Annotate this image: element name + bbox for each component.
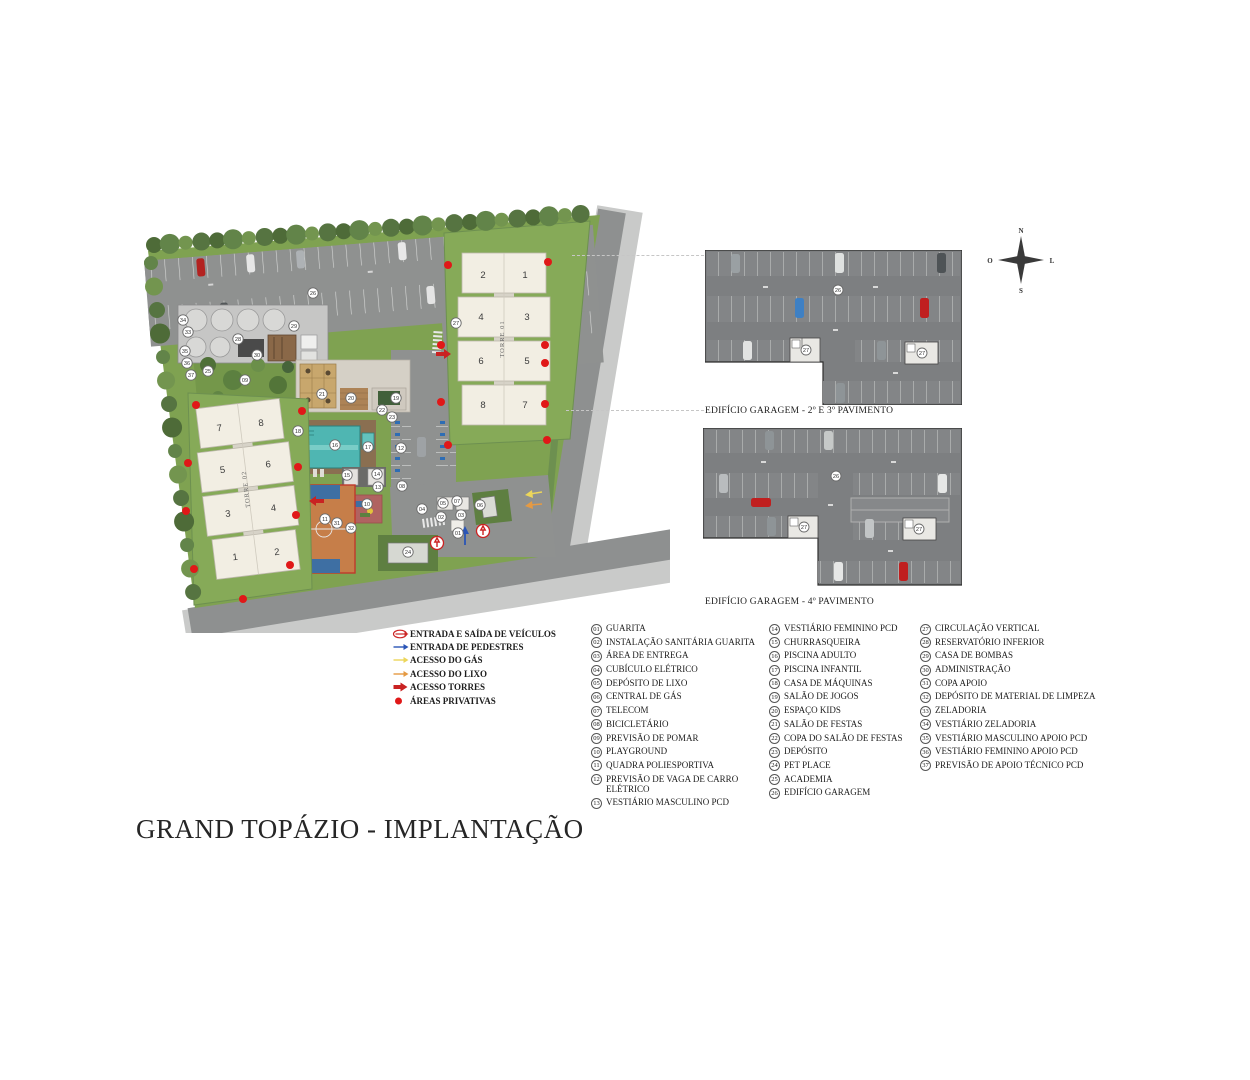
legend-item-number: 18 xyxy=(769,678,780,689)
tree xyxy=(192,233,210,251)
legend-item-number: 26 xyxy=(769,788,780,799)
legend-item-number: 14 xyxy=(769,624,780,635)
number-marker: 27 xyxy=(801,345,811,355)
svg-text:23: 23 xyxy=(389,415,395,421)
legend-item-label: DEPÓSITO DE LIXO xyxy=(606,678,687,689)
legend-item-label: CENTRAL DE GÁS xyxy=(606,691,682,702)
svg-text:30: 30 xyxy=(254,353,260,359)
legend-item: 28RESERVATÓRIO INFERIOR xyxy=(920,637,1112,649)
number-marker: 07 xyxy=(452,496,462,506)
tree xyxy=(160,234,180,254)
tree xyxy=(209,232,225,248)
tree xyxy=(508,210,526,228)
private-area-dot xyxy=(437,341,445,349)
private-area-dot xyxy=(444,261,452,269)
connector-line-top xyxy=(572,255,704,256)
legend-item-label: EDIFÍCIO GARAGEM xyxy=(784,787,870,798)
svg-text:25: 25 xyxy=(205,369,211,375)
unit-number: 5 xyxy=(524,356,529,367)
private-area-dot xyxy=(286,561,294,569)
legend-item: 03ÁREA DE ENTREGA xyxy=(591,650,765,662)
number-marker: 22 xyxy=(377,405,387,415)
legend-item-label: ACADEMIA xyxy=(784,774,833,785)
legend-item: 11QUADRA POLIESPORTIVA xyxy=(591,760,765,772)
legend-item: 23DEPÓSITO xyxy=(769,746,923,758)
legend-item: 36VESTIÁRIO FEMININO APOIO PCD xyxy=(920,746,1112,758)
tree xyxy=(223,229,243,249)
access-legend-item: ENTRADA DE PEDESTRES xyxy=(392,640,556,653)
tower1-label: TORRE 01 xyxy=(499,320,506,357)
svg-text:26: 26 xyxy=(310,291,316,297)
tree xyxy=(495,213,509,227)
legend-item-number: 33 xyxy=(920,706,931,717)
unit-number: 1 xyxy=(522,270,527,281)
tree xyxy=(286,225,306,245)
tree xyxy=(242,231,256,245)
number-marker: 19 xyxy=(391,393,401,403)
site-plan: 21436587 TORRE 01 78563412 TORRE 02 xyxy=(138,205,670,633)
legend-item: 16PISCINA ADULTO xyxy=(769,650,923,662)
legend-item-number: 25 xyxy=(769,774,780,785)
svg-text:27: 27 xyxy=(803,348,809,354)
tree xyxy=(319,223,337,241)
legend-item-label: VESTIÁRIO ZELADORIA xyxy=(935,719,1036,730)
legend-column-1: 01GUARITA02INSTALAÇÃO SANITÁRIA GUARITA0… xyxy=(591,623,765,811)
number-marker: 13 xyxy=(373,482,383,492)
svg-text:22: 22 xyxy=(379,408,385,414)
number-marker: 11 xyxy=(320,514,330,524)
svg-text:06: 06 xyxy=(477,503,483,509)
svg-text:02: 02 xyxy=(438,515,444,521)
legend-item-number: 12 xyxy=(591,774,602,785)
legend-item: 25ACADEMIA xyxy=(769,774,923,786)
number-marker: 26 xyxy=(831,471,841,481)
legend-item-label: SALÃO DE FESTAS xyxy=(784,719,862,730)
tree xyxy=(305,227,319,241)
number-marker: 18 xyxy=(293,426,303,436)
private-area-dot xyxy=(294,463,302,471)
number-marker: 06 xyxy=(475,500,485,510)
legend-item-number: 22 xyxy=(769,733,780,744)
legend-item-label: PREVISÃO DE VAGA DE CARRO ELÉTRICO xyxy=(606,774,765,796)
svg-text:01: 01 xyxy=(455,531,461,537)
number-marker: 26 xyxy=(308,288,318,298)
legend-item-number: 09 xyxy=(591,733,602,744)
svg-text:19: 19 xyxy=(393,396,399,402)
tree xyxy=(399,219,415,235)
legend-item: 08BICICLETÁRIO xyxy=(591,719,765,731)
legend-item: 34VESTIÁRIO ZELADORIA xyxy=(920,719,1112,731)
legend-item-number: 29 xyxy=(920,651,931,662)
legend-item-number: 08 xyxy=(591,719,602,730)
legend-item-label: PISCINA ADULTO xyxy=(784,650,856,661)
private-area-dot xyxy=(292,511,300,519)
tree xyxy=(368,222,382,236)
legend-item: 19SALÃO DE JOGOS xyxy=(769,691,923,703)
access-legend-label: ACESSO TORRES xyxy=(410,682,485,692)
compass-south: S xyxy=(1019,287,1023,294)
private-area-dot xyxy=(541,341,549,349)
garage-plan-2: 262727 xyxy=(703,428,962,586)
access-legend-label: ACESSO DO GÁS xyxy=(410,655,483,665)
legend-item: 10PLAYGROUND xyxy=(591,746,765,758)
legend-item: 37PREVISÃO DE APOIO TÉCNICO PCD xyxy=(920,760,1112,772)
number-marker: 24 xyxy=(403,547,413,557)
unit-number: 3 xyxy=(524,312,529,323)
legend-item-number: 35 xyxy=(920,733,931,744)
number-marker: 04 xyxy=(417,504,427,514)
number-marker: 09 xyxy=(240,375,250,385)
number-marker: 21 xyxy=(317,389,327,399)
tree xyxy=(256,228,274,246)
legend-item: 02INSTALAÇÃO SANITÁRIA GUARITA xyxy=(591,637,765,649)
legend-item: 05DEPÓSITO DE LIXO xyxy=(591,678,765,690)
legend-item-number: 13 xyxy=(591,798,602,809)
number-marker: 08 xyxy=(397,481,407,491)
tree xyxy=(145,278,163,296)
legend-item: 14VESTIÁRIO FEMININO PCD xyxy=(769,623,923,635)
legend-item-number: 23 xyxy=(769,747,780,758)
number-marker: 27 xyxy=(917,348,927,358)
page-title: GRAND TOPÁZIO - IMPLANTAÇÃO xyxy=(136,814,584,845)
svg-text:11: 11 xyxy=(322,517,328,523)
access-legend-label: ENTRADA E SAÍDA DE VEÍCULOS xyxy=(410,629,556,639)
garage-plan-2-label: EDIFÍCIO GARAGEM - 4º PAVIMENTO xyxy=(705,597,874,607)
svg-text:17: 17 xyxy=(365,445,371,451)
svg-text:13: 13 xyxy=(375,485,381,491)
legend-item: 35VESTIÁRIO MASCULINO APOIO PCD xyxy=(920,733,1112,745)
legend-item-label: ZELADORIA xyxy=(935,705,987,716)
legend-item-number: 34 xyxy=(920,719,931,730)
legend-item: 27CIRCULAÇÃO VERTICAL xyxy=(920,623,1112,635)
number-marker: 20 xyxy=(346,393,356,403)
vehicle-entrance-marker xyxy=(477,525,490,538)
svg-text:12: 12 xyxy=(398,446,404,452)
svg-text:18: 18 xyxy=(295,429,301,435)
legend-item-number: 16 xyxy=(769,651,780,662)
legend-item-number: 28 xyxy=(920,637,931,648)
svg-text:20: 20 xyxy=(348,396,354,402)
double-arrow-icon xyxy=(392,629,410,639)
svg-text:36: 36 xyxy=(184,361,190,367)
svg-text:26: 26 xyxy=(835,288,841,294)
legend-item-number: 07 xyxy=(591,706,602,717)
private-area-dot xyxy=(192,401,200,409)
unit-number: 7 xyxy=(522,400,527,411)
legend-item: 30ADMINISTRAÇÃO xyxy=(920,664,1112,676)
legend-item-number: 19 xyxy=(769,692,780,703)
access-legend-item: ACESSO DO GÁS xyxy=(392,654,556,667)
legend-item-label: ADMINISTRAÇÃO xyxy=(935,664,1011,675)
private-area-dot xyxy=(541,400,549,408)
tree xyxy=(476,211,496,231)
tree xyxy=(349,220,369,240)
legend-item-label: ÁREA DE ENTREGA xyxy=(606,650,689,661)
legend-item-label: VESTIÁRIO MASCULINO PCD xyxy=(606,797,729,808)
number-marker: 27 xyxy=(451,318,461,328)
private-area-dot xyxy=(437,398,445,406)
private-area-dot xyxy=(444,441,452,449)
access-legend-label: ENTRADA DE PEDESTRES xyxy=(410,642,524,652)
arrow-icon xyxy=(392,655,410,665)
number-marker: 31 xyxy=(332,518,342,528)
legend-item-number: 06 xyxy=(591,692,602,703)
legend-item: 32DEPÓSITO DE MATERIAL DE LIMPEZA xyxy=(920,691,1112,703)
water-tank xyxy=(210,337,230,357)
legend-item-number: 03 xyxy=(591,651,602,662)
legend-item-number: 32 xyxy=(920,692,931,703)
compass-north: N xyxy=(1018,227,1023,235)
tree xyxy=(382,219,400,237)
svg-text:21: 21 xyxy=(319,392,325,398)
legend-item-number: 31 xyxy=(920,678,931,689)
svg-text:16: 16 xyxy=(332,443,338,449)
legend-item-label: ESPAÇO KIDS xyxy=(784,705,841,716)
number-marker: 28 xyxy=(233,334,243,344)
tree xyxy=(156,350,170,364)
compass-rose: N S L O xyxy=(986,224,1056,294)
legend-item: 09PREVISÃO DE POMAR xyxy=(591,733,765,745)
arrow-icon xyxy=(392,642,410,652)
water-tank xyxy=(263,309,285,331)
number-marker: 15 xyxy=(342,470,352,480)
tree xyxy=(173,490,189,506)
svg-text:29: 29 xyxy=(291,324,297,330)
svg-text:27: 27 xyxy=(916,527,922,533)
dot-icon xyxy=(392,696,410,706)
svg-text:37: 37 xyxy=(188,373,194,379)
tree xyxy=(162,418,182,438)
legend-item: 31COPA APOIO xyxy=(920,678,1112,690)
svg-text:10: 10 xyxy=(364,502,370,508)
number-marker: 01 xyxy=(453,528,463,538)
number-marker: 30 xyxy=(252,350,262,360)
private-area-dot xyxy=(298,407,306,415)
number-marker: 16 xyxy=(330,440,340,450)
tree xyxy=(150,324,170,344)
tree xyxy=(413,215,433,235)
access-legend-item: ACESSO DO LIXO xyxy=(392,667,556,680)
number-marker: 17 xyxy=(363,442,373,452)
access-legend-label: ÁREAS PRIVATIVAS xyxy=(410,696,496,706)
legend-item: 04CUBÍCULO ELÉTRICO xyxy=(591,664,765,676)
legend-item-label: COPA DO SALÃO DE FESTAS xyxy=(784,733,902,744)
number-marker: 35 xyxy=(180,346,190,356)
legend-item: 21SALÃO DE FESTAS xyxy=(769,719,923,731)
legend-item-label: CASA DE MÁQUINAS xyxy=(784,678,873,689)
legend-item-label: CHURRASQUEIRA xyxy=(784,637,861,648)
svg-text:27: 27 xyxy=(919,351,925,357)
garage-plan-1: 262727 xyxy=(705,250,962,405)
amenities-block xyxy=(296,360,410,412)
svg-text:14: 14 xyxy=(374,472,380,478)
legend-item-label: INSTALAÇÃO SANITÁRIA GUARITA xyxy=(606,637,755,648)
tree xyxy=(161,396,177,412)
legend-column-2: 14VESTIÁRIO FEMININO PCD15CHURRASQUEIRA1… xyxy=(769,623,923,801)
legend-item-number: 27 xyxy=(920,624,931,635)
tree xyxy=(525,209,541,225)
legend-item-label: PISCINA INFANTIL xyxy=(784,664,862,675)
legend-item-number: 10 xyxy=(591,747,602,758)
legend-item-number: 21 xyxy=(769,719,780,730)
number-marker: 10 xyxy=(362,499,372,509)
legend-item: 12PREVISÃO DE VAGA DE CARRO ELÉTRICO xyxy=(591,774,765,796)
svg-text:03: 03 xyxy=(458,513,464,519)
legend-item-number: 11 xyxy=(591,760,602,771)
tree xyxy=(149,302,165,318)
private-area-dot xyxy=(544,258,552,266)
svg-text:24: 24 xyxy=(405,550,411,556)
private-area-dot xyxy=(543,436,551,444)
access-legend-label: ACESSO DO LIXO xyxy=(410,669,487,679)
tree xyxy=(180,538,194,552)
legend-item: 24PET PLACE xyxy=(769,760,923,772)
tree xyxy=(336,223,352,239)
legend-item-label: PET PLACE xyxy=(784,760,831,771)
access-legend-item: ÁREAS PRIVATIVAS xyxy=(392,694,556,707)
legend-column-3: 27CIRCULAÇÃO VERTICAL28RESERVATÓRIO INFE… xyxy=(920,623,1112,774)
number-marker: 25 xyxy=(203,366,213,376)
legend-item-label: PREVISÃO DE APOIO TÉCNICO PCD xyxy=(935,760,1083,771)
number-marker: 37 xyxy=(186,370,196,380)
water-tank xyxy=(237,309,259,331)
svg-text:28: 28 xyxy=(235,337,241,343)
legend-item: 17PISCINA INFANTIL xyxy=(769,664,923,676)
unit-number: 4 xyxy=(478,312,483,323)
svg-text:07: 07 xyxy=(454,499,460,505)
legend-item-label: CASA DE BOMBAS xyxy=(935,650,1013,661)
number-marker: 12 xyxy=(396,443,406,453)
compass-east: L xyxy=(1050,257,1055,265)
legend-item-number: 05 xyxy=(591,678,602,689)
legend-item-label: DEPÓSITO DE MATERIAL DE LIMPEZA xyxy=(935,691,1096,702)
legend-item: 22COPA DO SALÃO DE FESTAS xyxy=(769,733,923,745)
compass-star-icon xyxy=(998,236,1044,284)
access-legend-item: ACESSO TORRES xyxy=(392,681,556,694)
svg-text:32: 32 xyxy=(348,526,354,532)
legend-item-label: SALÃO DE JOGOS xyxy=(784,691,859,702)
legend-item-label: DEPÓSITO xyxy=(784,746,827,757)
number-marker: 02 xyxy=(436,512,446,522)
legend-item: 18CASA DE MÁQUINAS xyxy=(769,678,923,690)
legend-item: 01GUARITA xyxy=(591,623,765,635)
svg-text:33: 33 xyxy=(185,330,191,336)
tree xyxy=(146,237,162,253)
legend-item-label: PLAYGROUND xyxy=(606,746,667,757)
number-marker: 14 xyxy=(372,469,382,479)
number-marker: 32 xyxy=(346,523,356,533)
tree xyxy=(144,256,158,270)
legend-item-number: 20 xyxy=(769,706,780,717)
vehicle-entrance-marker xyxy=(431,537,444,550)
legend-item-number: 36 xyxy=(920,747,931,758)
legend-item-label: CIRCULAÇÃO VERTICAL xyxy=(935,623,1040,634)
legend-item-number: 04 xyxy=(591,665,602,676)
svg-text:08: 08 xyxy=(399,484,405,490)
legend-item: 06CENTRAL DE GÁS xyxy=(591,691,765,703)
legend-item-number: 15 xyxy=(769,637,780,648)
tree xyxy=(179,236,193,250)
water-tank xyxy=(211,309,233,331)
unit-number: 2 xyxy=(480,270,485,281)
legend-item-label: RESERVATÓRIO INFERIOR xyxy=(935,637,1044,648)
bold-arrow-icon xyxy=(392,682,410,692)
tree xyxy=(169,466,187,484)
number-marker: 34 xyxy=(178,315,188,325)
number-marker: 26 xyxy=(833,285,843,295)
legend-item-label: VESTIÁRIO FEMININO PCD xyxy=(784,623,898,634)
tree xyxy=(272,228,288,244)
legend-item-number: 30 xyxy=(920,665,931,676)
svg-text:09: 09 xyxy=(242,378,248,384)
legend-item-label: GUARITA xyxy=(606,623,646,634)
garage-plan-1-label: EDIFÍCIO GARAGEM - 2º E 3º PAVIMENTO xyxy=(705,406,893,416)
number-marker: 36 xyxy=(182,358,192,368)
legend-item: 20ESPAÇO KIDS xyxy=(769,705,923,717)
legend-item: 13VESTIÁRIO MASCULINO PCD xyxy=(591,797,765,809)
legend-item: 29CASA DE BOMBAS xyxy=(920,650,1112,662)
tree xyxy=(445,214,463,232)
legend-item-label: BICICLETÁRIO xyxy=(606,719,669,730)
legend-item-label: COPA APOIO xyxy=(935,678,987,689)
legend-item-number: 01 xyxy=(591,624,602,635)
access-legend-item: ENTRADA E SAÍDA DE VEÍCULOS xyxy=(392,627,556,640)
svg-text:05: 05 xyxy=(440,501,446,507)
svg-text:26: 26 xyxy=(833,474,839,480)
unit-number: 6 xyxy=(478,356,483,367)
legend-item-label: VESTIÁRIO MASCULINO APOIO PCD xyxy=(935,733,1087,744)
svg-text:04: 04 xyxy=(419,507,425,513)
tree xyxy=(185,584,201,600)
private-area-dot xyxy=(182,507,190,515)
legend-item: 07TELECOM xyxy=(591,705,765,717)
legend-item-label: VESTIÁRIO FEMININO APOIO PCD xyxy=(935,746,1078,757)
unit-number: 8 xyxy=(480,400,485,411)
private-area-dot xyxy=(184,459,192,467)
svg-text:27: 27 xyxy=(801,525,807,531)
number-marker: 27 xyxy=(799,522,809,532)
connector-line-bottom xyxy=(566,410,704,411)
private-area-dot xyxy=(541,359,549,367)
tree xyxy=(539,206,559,226)
number-marker: 23 xyxy=(387,412,397,422)
legend-item: 26EDIFÍCIO GARAGEM xyxy=(769,787,923,799)
legend-item-number: 17 xyxy=(769,665,780,676)
legend-item-number: 24 xyxy=(769,760,780,771)
number-marker: 29 xyxy=(289,321,299,331)
svg-text:15: 15 xyxy=(344,473,350,479)
legend-item-number: 02 xyxy=(591,637,602,648)
svg-text:27: 27 xyxy=(453,321,459,327)
legend-item-label: CUBÍCULO ELÉTRICO xyxy=(606,664,698,675)
tree xyxy=(572,205,590,223)
svg-text:31: 31 xyxy=(334,521,340,527)
tree xyxy=(431,217,445,231)
legend-item-label: QUADRA POLIESPORTIVA xyxy=(606,760,714,771)
number-marker: 33 xyxy=(183,327,193,337)
legend-item-label: PREVISÃO DE POMAR xyxy=(606,733,699,744)
compass-west: O xyxy=(987,257,993,265)
legend-item-label: TELECOM xyxy=(606,705,649,716)
tree xyxy=(558,208,572,222)
svg-text:34: 34 xyxy=(180,318,186,324)
parked-car xyxy=(417,437,426,457)
tree xyxy=(157,372,175,390)
implantation-sheet: 21436587 TORRE 01 78563412 TORRE 02 xyxy=(0,0,1250,1080)
private-area-dot xyxy=(190,565,198,573)
number-marker: 03 xyxy=(456,510,466,520)
private-area-dot xyxy=(239,595,247,603)
